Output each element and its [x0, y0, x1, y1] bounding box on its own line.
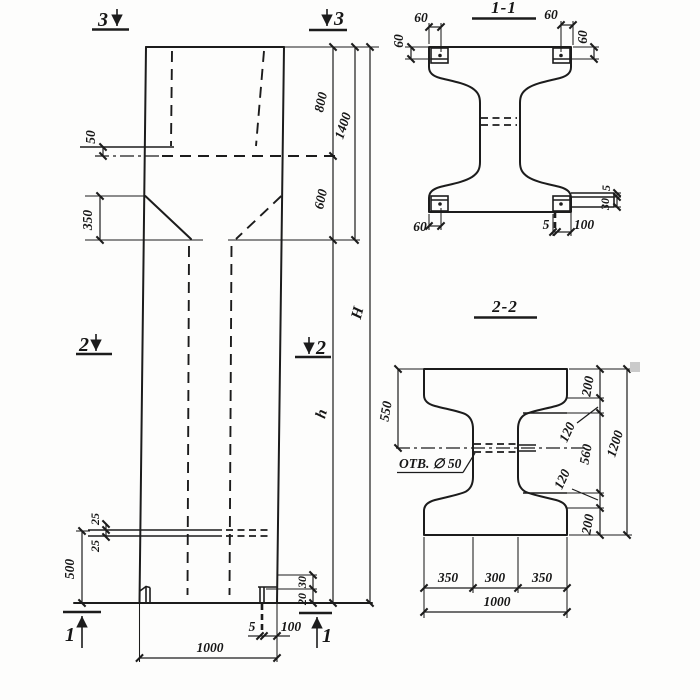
section-1-1-title: 1-1 — [491, 0, 517, 17]
dim-label-20: 20 — [295, 593, 309, 606]
cut-marker-2-right-label: 2 — [315, 337, 326, 359]
dim-label-50: 50 — [83, 130, 98, 144]
dim-label-60-top-left: 60 — [414, 10, 428, 25]
base-plate-lines — [88, 530, 268, 536]
section-2-2-outline — [424, 369, 567, 535]
dim-label-30-right: 30 — [598, 198, 612, 211]
hole-label: ОТВ. ∅ 50 — [399, 456, 462, 471]
cut-marker-3-right-label: 3 — [333, 8, 344, 30]
lower-web-hidden-edges — [188, 246, 232, 595]
dim-label-120-top: 120 — [556, 420, 578, 445]
web-hidden-dashes — [481, 118, 517, 125]
dim-label-300: 300 — [484, 570, 506, 585]
section-1-1-outline — [429, 47, 571, 212]
cut-marker-3-left-label: 3 — [97, 9, 108, 31]
column-drawing-canvas: 50 350 800 600 h 1400 H 500 25 25 3 — [0, 0, 700, 700]
hole-callout: ОТВ. ∅ 50 — [397, 453, 475, 473]
dim-label-30: 30 — [295, 576, 309, 589]
dim-label-H: H — [348, 304, 368, 322]
dim-label-1000: 1000 — [197, 640, 224, 655]
section-1-1: 1-1 — [391, 0, 621, 236]
dim-label-25-bottom: 25 — [88, 540, 102, 553]
dim-label-550: 550 — [376, 400, 394, 423]
dim-label-60-right: 60 — [575, 30, 590, 44]
embedded-plate-bottom-right — [553, 196, 570, 211]
cut-marker-1-left-label: 1 — [65, 624, 75, 646]
section-2-2: 2-2 ОТВ. ∅ 50 550 — [376, 297, 640, 618]
drawing-sheet: 50 350 800 600 h 1400 H 500 25 25 3 — [0, 0, 700, 700]
section-1-1-dimensions: 60 60 60 60 60 5 100 — [391, 7, 621, 236]
elevation-view: 50 350 800 600 h 1400 H 500 25 25 3 — [62, 8, 379, 662]
left-foot-detail — [140, 587, 150, 604]
dim-label-120-bottom: 120 — [551, 467, 573, 492]
cut-marker-3-left: 3 — [92, 9, 129, 31]
dim-label-500: 500 — [62, 559, 77, 580]
upper-web-hidden-edges — [171, 51, 264, 146]
dim-label-1400: 1400 — [331, 110, 354, 141]
scan-artifact — [630, 362, 640, 372]
dim-label-350-right: 350 — [531, 570, 553, 585]
dim-label-800: 800 — [311, 90, 330, 113]
cut-marker-1-right: 1 — [299, 613, 332, 648]
dim-label-60-left: 60 — [391, 34, 406, 48]
dim-label-350: 350 — [80, 210, 95, 232]
dim-label-foot-100: 100 — [281, 619, 302, 634]
dim-label-560: 560 — [576, 443, 594, 466]
cut-marker-1-right-label: 1 — [322, 625, 332, 647]
section-2-2-dimensions: 550 200 560 200 120 120 1200 — [376, 369, 632, 618]
dim-label-foot-5: 5 — [249, 619, 256, 634]
dim-label-25-top: 25 — [88, 513, 102, 526]
dim-label-100-bottom: 100 — [574, 217, 595, 232]
dim-label-5-bottom: 5 — [543, 217, 550, 232]
section-2-2-title: 2-2 — [491, 297, 518, 316]
dim-label-1200: 1200 — [603, 428, 626, 459]
embedded-plate-top-left — [431, 48, 448, 63]
dim-label-200-top: 200 — [578, 375, 597, 399]
dim-label-60-bottom-left: 60 — [413, 219, 427, 234]
dim-label-200-bottom: 200 — [578, 513, 597, 537]
cut-marker-2-right: 2 — [295, 337, 331, 359]
dim-label-5-right: 5 — [599, 185, 613, 191]
cut-marker-2-left: 2 — [76, 334, 112, 356]
cut-marker-2-left-label: 2 — [78, 334, 89, 356]
dim-label-600: 600 — [311, 187, 330, 210]
cut-marker-1-left: 1 — [63, 612, 101, 648]
console-level-lines — [80, 147, 336, 156]
dim-label-h: h — [312, 407, 331, 420]
embedded-plate-bottom-left — [431, 196, 448, 211]
cut-marker-3-right: 3 — [309, 8, 347, 30]
dim-label-350-left: 350 — [437, 570, 459, 585]
web-hole — [396, 444, 588, 452]
dim-label-60-top-right: 60 — [544, 7, 558, 22]
dim-label-1000-section: 1000 — [484, 594, 511, 609]
